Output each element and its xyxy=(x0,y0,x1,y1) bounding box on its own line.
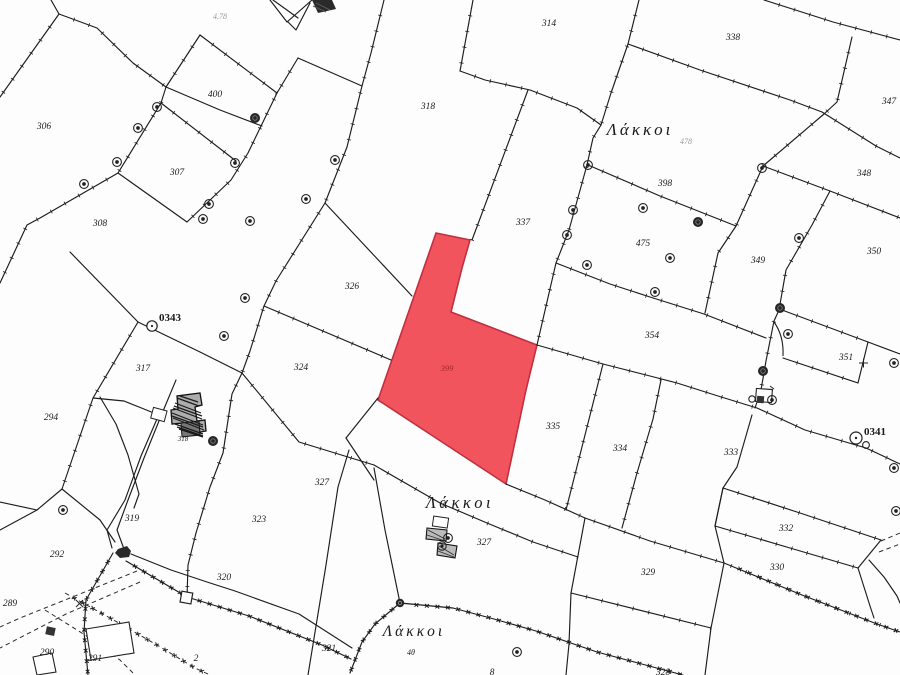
svg-text:4θ: 4θ xyxy=(407,648,415,657)
svg-text:290: 290 xyxy=(40,648,55,658)
svg-text:291: 291 xyxy=(88,654,102,664)
svg-text:329: 329 xyxy=(640,568,656,578)
svg-text:478: 478 xyxy=(680,137,692,146)
svg-text:8: 8 xyxy=(490,668,495,675)
svg-text:327: 327 xyxy=(476,538,493,548)
svg-text:Λάκκοι: Λάκκοι xyxy=(605,120,674,139)
svg-text:398: 398 xyxy=(657,179,673,189)
svg-text:321: 321 xyxy=(321,644,336,654)
svg-text:319: 319 xyxy=(124,514,140,524)
svg-text:289: 289 xyxy=(3,599,18,609)
svg-text:Λάκκοι: Λάκκοι xyxy=(381,623,445,640)
svg-text:351: 351 xyxy=(838,353,853,363)
svg-text:307: 307 xyxy=(169,168,186,178)
svg-text:354: 354 xyxy=(644,331,660,341)
svg-text:348: 348 xyxy=(856,169,872,179)
svg-text:330: 330 xyxy=(769,563,785,573)
svg-text:347: 347 xyxy=(881,97,898,107)
svg-text:314: 314 xyxy=(541,19,557,29)
svg-text:308: 308 xyxy=(92,219,108,229)
svg-text:0341: 0341 xyxy=(864,426,886,438)
svg-text:2: 2 xyxy=(194,654,199,664)
svg-text:320: 320 xyxy=(216,573,232,583)
svg-text:335: 335 xyxy=(545,422,561,432)
svg-text:Λάκκοι: Λάκκοι xyxy=(424,493,494,512)
svg-text:400: 400 xyxy=(208,90,223,100)
svg-text:337: 337 xyxy=(515,218,532,228)
svg-text:292: 292 xyxy=(50,550,65,560)
svg-text:338: 338 xyxy=(725,33,741,43)
svg-text:326: 326 xyxy=(344,282,360,292)
svg-text:318: 318 xyxy=(420,102,436,112)
svg-text:294: 294 xyxy=(44,413,59,423)
svg-text:399: 399 xyxy=(440,363,455,373)
svg-text:350: 350 xyxy=(866,247,882,257)
svg-text:334: 334 xyxy=(612,444,628,454)
svg-text:333: 333 xyxy=(723,448,739,458)
svg-text:328: 328 xyxy=(655,668,671,675)
svg-text:349: 349 xyxy=(750,256,766,266)
svg-text:317: 317 xyxy=(135,364,152,374)
svg-text:332: 332 xyxy=(778,524,794,534)
svg-text:327: 327 xyxy=(314,478,331,488)
svg-text:4.78: 4.78 xyxy=(213,12,227,21)
svg-text:318: 318 xyxy=(177,435,189,443)
svg-text:306: 306 xyxy=(36,122,52,132)
svg-text:323: 323 xyxy=(251,515,267,525)
svg-text:0343: 0343 xyxy=(159,312,182,324)
svg-text:475: 475 xyxy=(636,239,651,249)
svg-text:324: 324 xyxy=(293,363,309,373)
